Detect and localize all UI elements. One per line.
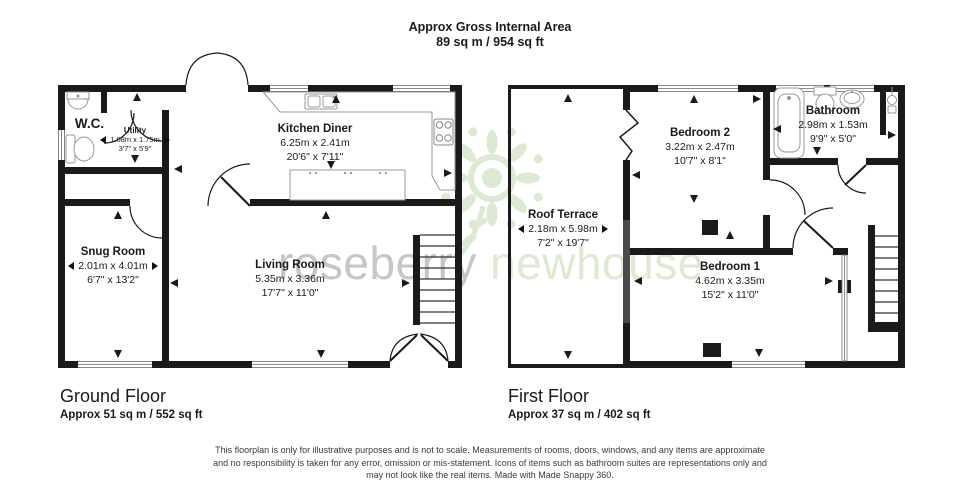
room-label-snug: Snug Room 2.01m x 4.01m 6'7" x 13'2" [52,245,174,287]
first-floor-caption: First Floor Approx 37 sq m / 402 sq ft [508,386,651,424]
room-dim-imperial: 10'7" x 8'1" [630,154,770,168]
measure-arrow-up-icon [322,211,330,219]
window-icon [732,361,805,368]
measure-arrow-down-icon [755,349,763,357]
measure-arrow-right-icon [602,225,608,233]
gf-stairs [420,235,455,323]
measure-arrow-up-icon [690,95,698,103]
floor-area: Approx 51 sq m / 552 sq ft [60,406,203,424]
window-icon [658,85,738,92]
room-name: Bedroom 1 [660,260,800,274]
room-dim-metric: 1.08m x 1.75m [100,135,170,144]
room-name: Bedroom 2 [630,126,770,140]
page-header: Approx Gross Internal Area 89 sq m / 954… [0,20,980,50]
entry-door-arc [217,53,248,85]
measure-arrow-left-icon [174,165,182,173]
measure-arrow-down-icon [131,155,139,163]
measure-arrow-up-icon [114,211,122,219]
measure-arrow-left-icon [632,171,640,179]
room-name: Roof Terrace [505,208,621,222]
room-label-living: Living Room 5.35m x 3.36m 17'7" x 11'0" [230,258,350,300]
floor-title: First Floor [508,386,651,406]
floorplan-page: Approx Gross Internal Area 89 sq m / 954… [0,0,980,489]
measure-arrow-right-icon [888,131,896,139]
measure-arrow-left-icon [518,225,524,233]
floor-area: Approx 37 sq m / 402 sq ft [508,406,651,424]
window-icon [58,130,65,160]
room-label-utility: Utility 1.08m x 1.75m 3'7" x 5'9" [100,126,170,153]
measure-arrow-right-icon [825,277,833,285]
bathroom-door-leaf [845,165,866,185]
bedroom2-door-arc [770,180,805,215]
island-counter [290,170,405,200]
room-dim-metric: 2.18m x 5.98m [505,222,621,236]
measure-arrow-right-icon [753,95,761,103]
measure-arrow-up-icon [564,94,572,102]
hob-icon [434,119,453,145]
kitchen-door-leaf [221,177,250,206]
disclaimer-line: This floorplan is only for illustrative … [0,444,980,457]
room-label-bathroom: Bathroom 2.98m x 1.53m 9'9" x 5'0" [780,104,886,146]
measure-arrow-down-icon [564,351,572,359]
measure-arrow-right-icon [402,279,410,287]
room-dim-imperial: 9'9" x 5'0" [780,132,886,146]
room-dim-metric: 2.98m x 1.53m [780,118,886,132]
measure-arrow-down-icon [813,147,821,155]
room-dim-imperial: 15'2" x 11'0" [660,288,800,302]
room-dim-imperial: 7'2" x 19'7" [505,236,621,250]
room-dim-metric: 4.62m x 3.35m [660,274,800,288]
bedroom1-door-leaf [804,221,833,248]
measure-arrow-down-icon [114,350,122,358]
entry-door-arc [186,53,217,85]
room-name: Bathroom [780,104,886,118]
snug-door-arc [130,206,162,238]
disclaimer-line: may not look like the real items. Made w… [0,469,980,482]
room-dim-imperial: 3'7" x 5'9" [100,144,170,153]
measure-arrow-up-icon [133,93,141,101]
room-name: Living Room [230,258,350,272]
window-icon [252,361,348,368]
window-icon [270,85,308,92]
measure-arrow-right-icon [152,262,158,270]
gross-area-title: Approx Gross Internal Area [0,20,980,35]
window-icon [78,361,152,368]
wc-basin-icon [67,92,89,109]
measure-arrow-down-icon [690,195,698,203]
room-name: Snug Room [52,245,174,259]
measure-arrow-left-icon [634,277,642,285]
window-wall-icon [842,255,847,361]
disclaimer-line: and no responsibility is taken for any e… [0,457,980,470]
kitchen-sink-icon [305,94,337,109]
gross-area-value: 89 sq m / 954 sq ft [0,35,980,50]
room-dim-metric: 3.22m x 2.47m [630,140,770,154]
room-name: Kitchen Diner [240,122,390,136]
room-dim-imperial: 20'6" x 7'11" [240,150,390,164]
ground-floor-plan [58,45,462,368]
window-icon [393,85,450,92]
terrace-parapet-wall [623,220,630,323]
room-name: Utility [100,126,170,135]
ground-floor-caption: Ground Floor Approx 51 sq m / 552 sq ft [60,386,203,424]
measure-arrow-down-icon [317,350,325,358]
measure-arrow-left-icon [68,262,74,270]
room-dim-metric: 6.25m x 2.41m [240,136,390,150]
room-label-roof-terrace: Roof Terrace 2.18m x 5.98m 7'2" x 19'7" [505,208,621,250]
room-label-bedroom1: Bedroom 1 4.62m x 3.35m 15'2" x 11'0" [660,260,800,302]
room-dim-metric: 2.01m x 4.01m [52,259,174,273]
room-label-bedroom2: Bedroom 2 3.22m x 2.47m 10'7" x 8'1" [630,126,770,168]
ff-stairs [875,236,898,313]
measure-arrow-left-icon [100,136,106,144]
toilet-icon [66,135,94,163]
measure-arrow-right-icon [164,136,170,144]
room-dim-imperial: 6'7" x 13'2" [52,273,174,287]
floor-title: Ground Floor [60,386,203,406]
room-dim-metric: 5.35m x 3.36m [230,272,350,286]
measure-arrow-up-icon [726,231,734,239]
room-dim-imperial: 17'7" x 11'0" [230,286,350,300]
disclaimer: This floorplan is only for illustrative … [0,444,980,482]
room-label-kitchen-diner: Kitchen Diner 6.25m x 2.41m 20'6" x 7'11… [240,122,390,164]
